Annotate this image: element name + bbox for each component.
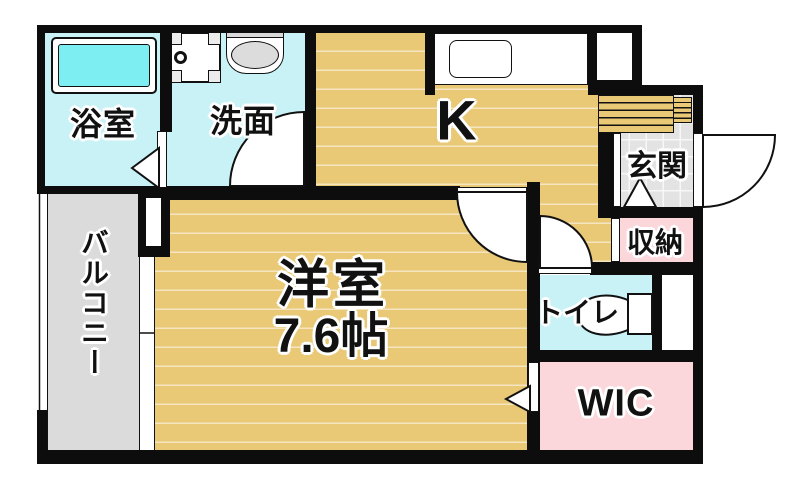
- wall-toilet-right: [652, 275, 662, 350]
- alcove: [597, 33, 632, 80]
- western-room-size-label: 7.6帖: [274, 296, 389, 366]
- pan-corner: [208, 32, 221, 45]
- balcony-label: バルコニー: [73, 228, 113, 378]
- wall-corner-inset: [146, 198, 161, 246]
- bath-door-strip: [157, 131, 167, 188]
- washbasin-bowl: [231, 41, 279, 69]
- wall-bottom-outer: [37, 450, 703, 464]
- wic-label: WIC: [578, 383, 655, 426]
- wall-under-alcove: [588, 80, 642, 95]
- kitchen-label: K: [436, 88, 477, 153]
- entrance-steps-icon: [598, 95, 674, 133]
- storage-label: 収納: [627, 221, 683, 261]
- wall-entrance-left: [598, 133, 613, 218]
- washroom-door-leaf: [296, 112, 305, 186]
- wall-left-outer-lower: [37, 410, 47, 455]
- wall-counter-stub: [425, 25, 435, 95]
- wall-entrance-bottom: [598, 207, 703, 218]
- wall-balcony-top: [37, 186, 139, 194]
- floor-plan: 浴室 洗面 K 玄関 収納 トイレ WIC 洋室 7.6帖 バルコニー: [0, 0, 812, 484]
- wall-top-outer: [37, 25, 642, 33]
- western-room-door-leaf: [457, 187, 527, 196]
- kitchen-sink-icon: [449, 40, 512, 78]
- bathroom-label: 浴室: [70, 99, 136, 145]
- wall-right-above-door: [693, 95, 703, 133]
- wall-washroom-kitchen: [305, 25, 316, 188]
- toilet-label: トイレ: [535, 291, 619, 331]
- washroom-label: 洗面: [210, 96, 276, 142]
- entrance-label: 玄関: [627, 141, 687, 185]
- wall-top-right: [640, 85, 703, 95]
- wall-main-horizontal: [138, 186, 460, 200]
- door-arc-entrance: [703, 135, 775, 207]
- pan-corner: [208, 70, 221, 83]
- bathtub-water: [58, 44, 150, 87]
- wall-toilet-wic: [527, 350, 703, 362]
- sliding-window-icon: [139, 257, 155, 450]
- entrance-step-small: [673, 97, 692, 123]
- wall-left-outer-upper: [37, 25, 45, 193]
- pipe-space: [662, 275, 693, 350]
- wall-bath-washroom: [160, 25, 172, 132]
- entrance-door-leaf: [693, 133, 703, 207]
- wall-alcove-left: [588, 25, 597, 85]
- wall-storage-bottom: [590, 262, 693, 275]
- faucet-icon: [174, 51, 187, 64]
- storage-door-strip: [611, 218, 620, 262]
- wic-door-strip: [528, 362, 539, 412]
- toilet-door-leaf: [538, 262, 592, 274]
- entrance-inner-strip: [613, 133, 621, 207]
- wall-right-outer: [693, 207, 703, 460]
